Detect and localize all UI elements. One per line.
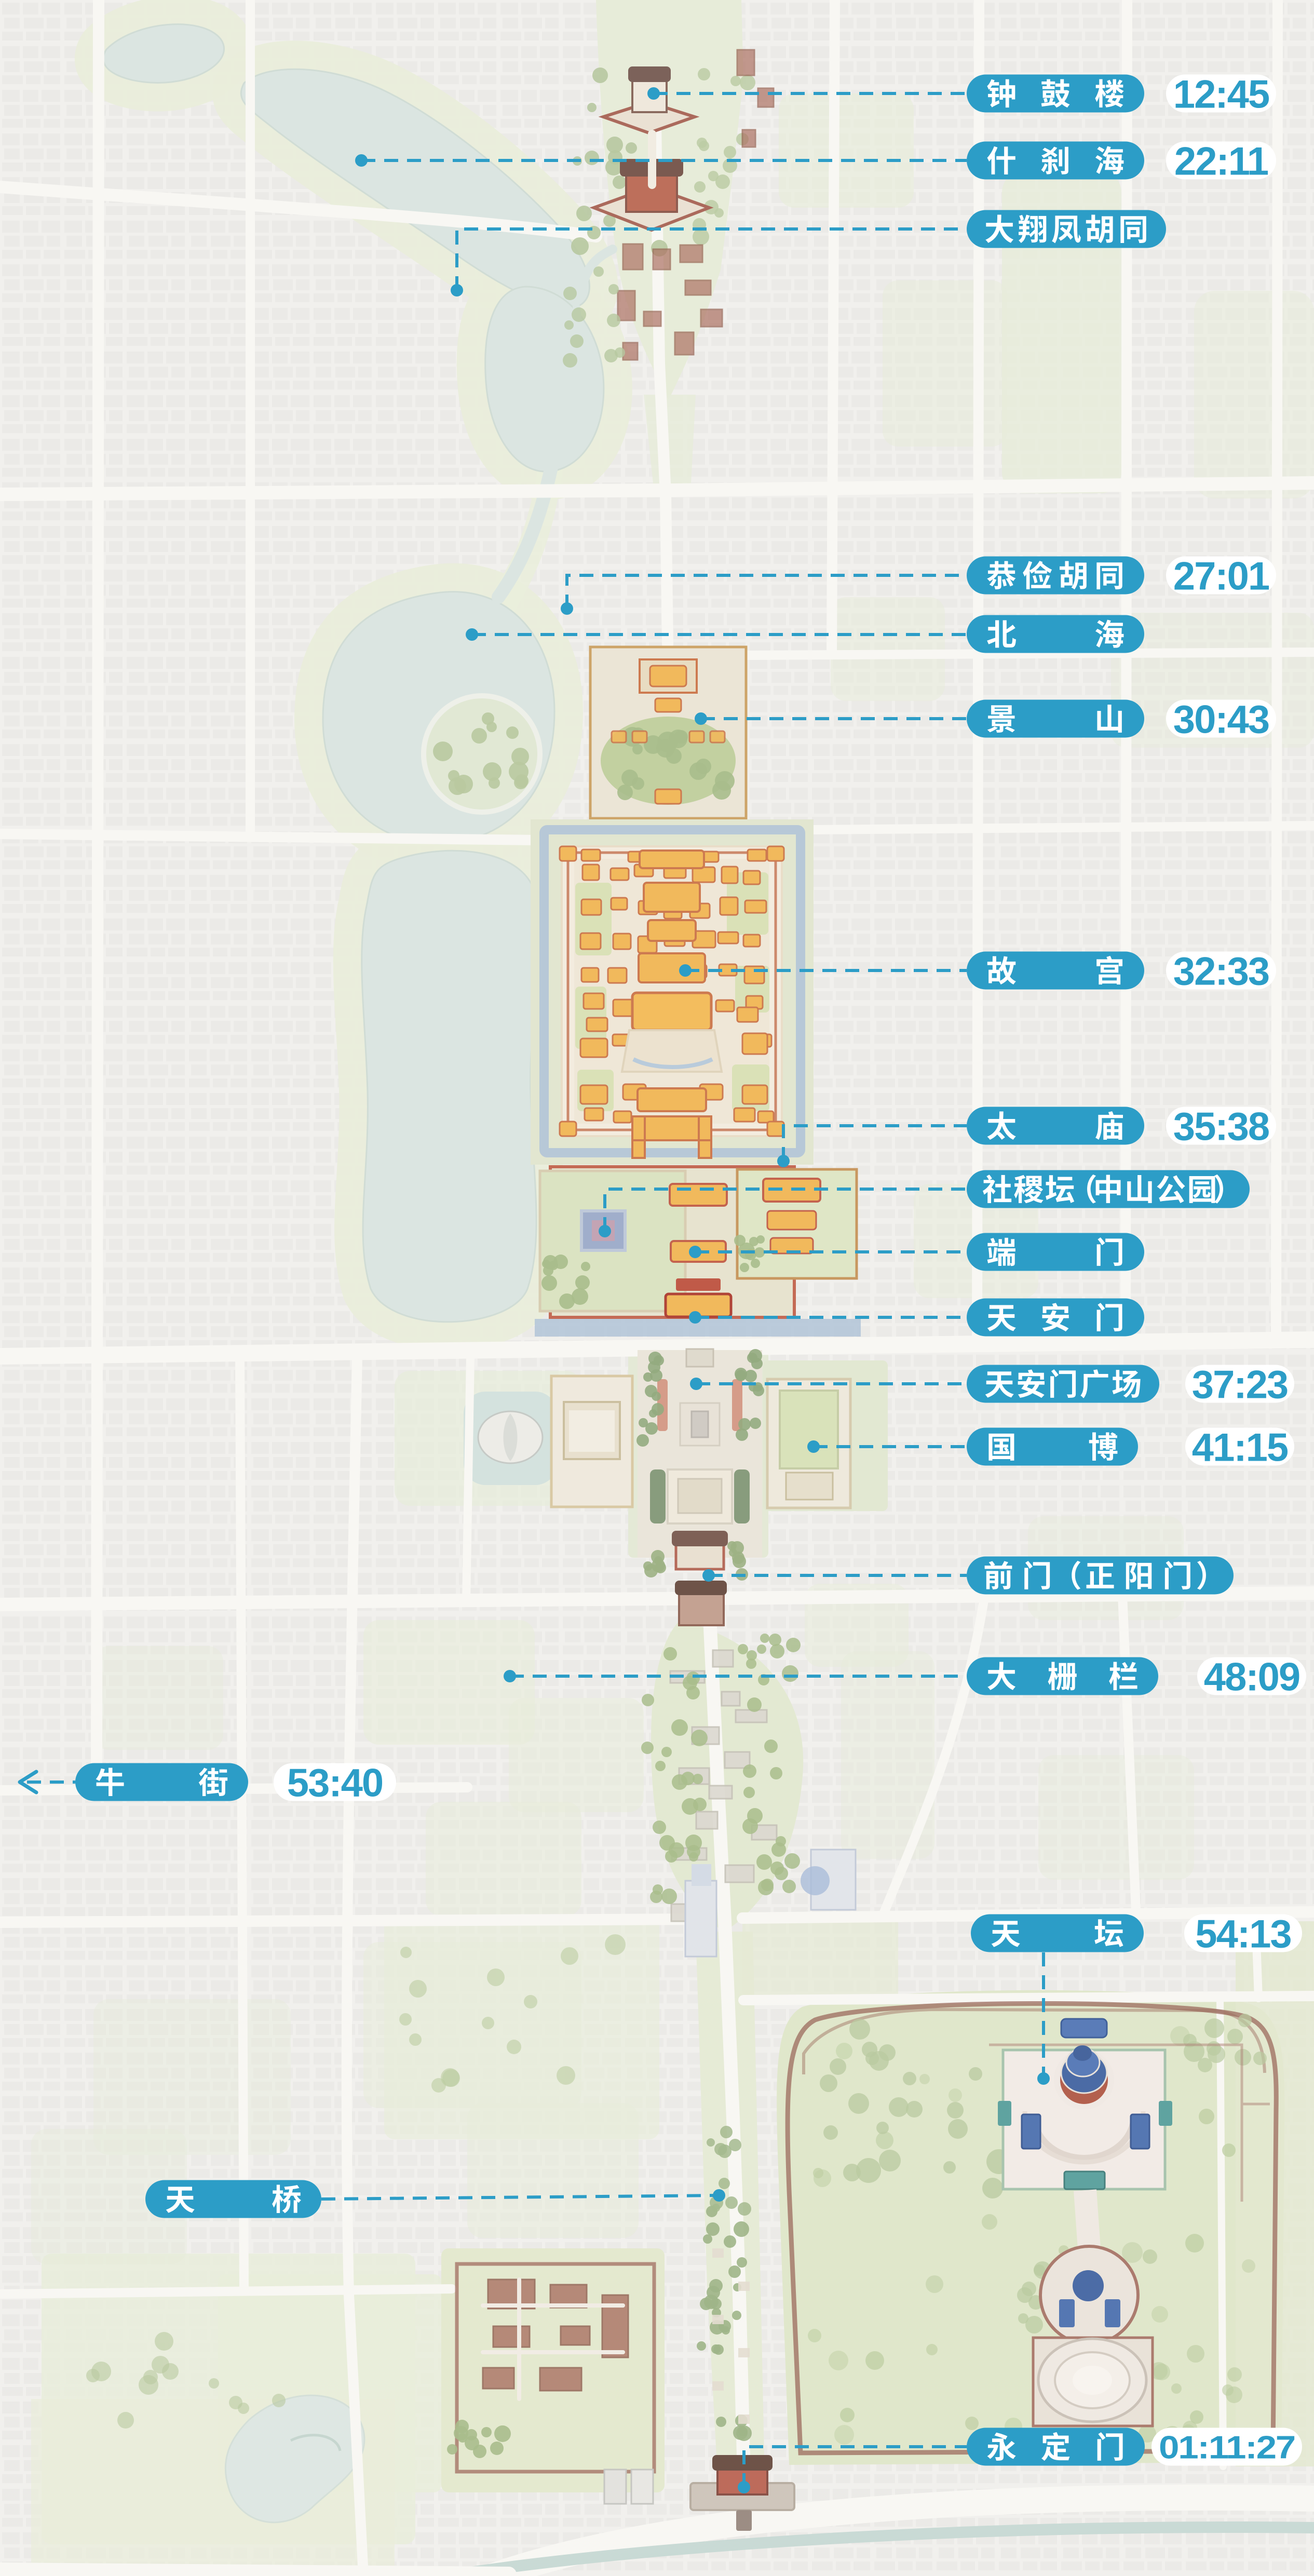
svg-text:41:15: 41:15	[1192, 1425, 1288, 1469]
svg-text:01:11:27: 01:11:27	[1159, 2430, 1295, 2465]
svg-text:48:09: 48:09	[1204, 1655, 1299, 1699]
svg-text:27:01: 27:01	[1173, 554, 1269, 598]
svg-text:12:45: 12:45	[1173, 72, 1269, 116]
svg-text:22:11: 22:11	[1174, 139, 1268, 183]
svg-text:37:23: 37:23	[1192, 1363, 1288, 1407]
svg-text:53:40: 53:40	[287, 1761, 383, 1805]
svg-text:30:43: 30:43	[1173, 697, 1269, 741]
svg-text:54:13: 54:13	[1195, 1912, 1291, 1956]
svg-text:32:33: 32:33	[1173, 949, 1269, 993]
svg-text:35:38: 35:38	[1173, 1104, 1269, 1149]
